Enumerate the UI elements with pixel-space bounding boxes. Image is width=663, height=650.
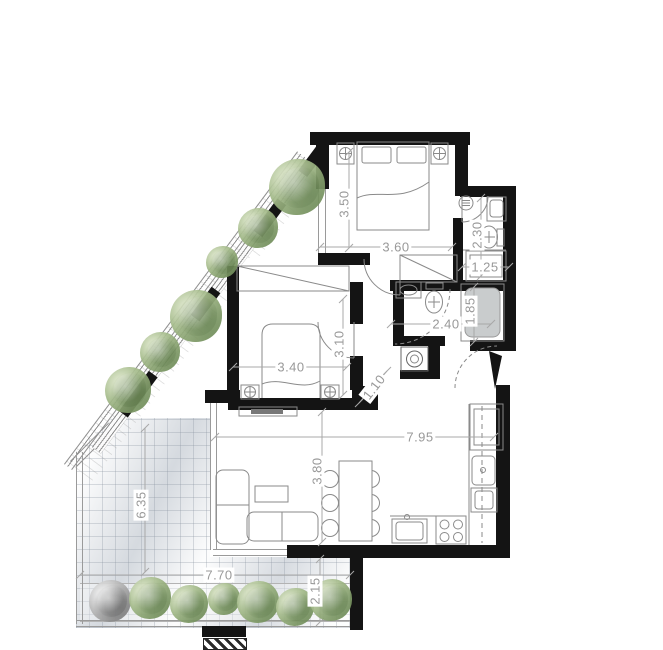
dimension-label-terrace-width: 7.70 [203, 568, 234, 583]
dimension-lines-layer [0, 0, 663, 650]
tree-icon [170, 290, 222, 342]
dimension-label-bedroom-left-depth: 3.10 [332, 328, 347, 359]
dimension-label-terrace-side: 2.15 [308, 575, 323, 606]
bush-icon [237, 581, 279, 623]
bush-icon [170, 585, 208, 623]
tree-icon [206, 246, 238, 278]
dimension-label-bedroom-top-depth: 3.50 [337, 188, 352, 219]
entry-step-icon [202, 626, 246, 637]
dimension-label-bedroom-top-width: 3.60 [380, 240, 411, 255]
dimension-label-bedroom-left-width: 3.40 [275, 360, 306, 375]
dimension-label-living-width: 7.95 [404, 430, 435, 445]
floor-plan-canvas: 3.503.602.301.252.401.853.403.101.107.95… [0, 0, 663, 650]
bush-icon [129, 577, 171, 619]
tree-icon [140, 332, 180, 372]
tree-icon [269, 159, 325, 215]
bush-icon [89, 580, 131, 622]
entry-hatch-icon [203, 638, 247, 650]
tree-icon [105, 367, 151, 413]
tree-icon [238, 208, 278, 248]
dimension-label-bath-top-width: 1.25 [469, 260, 500, 275]
bush-icon [208, 583, 240, 615]
dimension-label-bathtub-length: 1.85 [463, 295, 478, 326]
dimension-label-living-depth: 3.80 [310, 455, 325, 486]
dimension-label-bath-top-depth: 2.30 [470, 219, 485, 250]
dimension-label-terrace-depth: 6.35 [134, 489, 149, 520]
dimension-label-bath-mid-width: 2.40 [430, 317, 461, 332]
